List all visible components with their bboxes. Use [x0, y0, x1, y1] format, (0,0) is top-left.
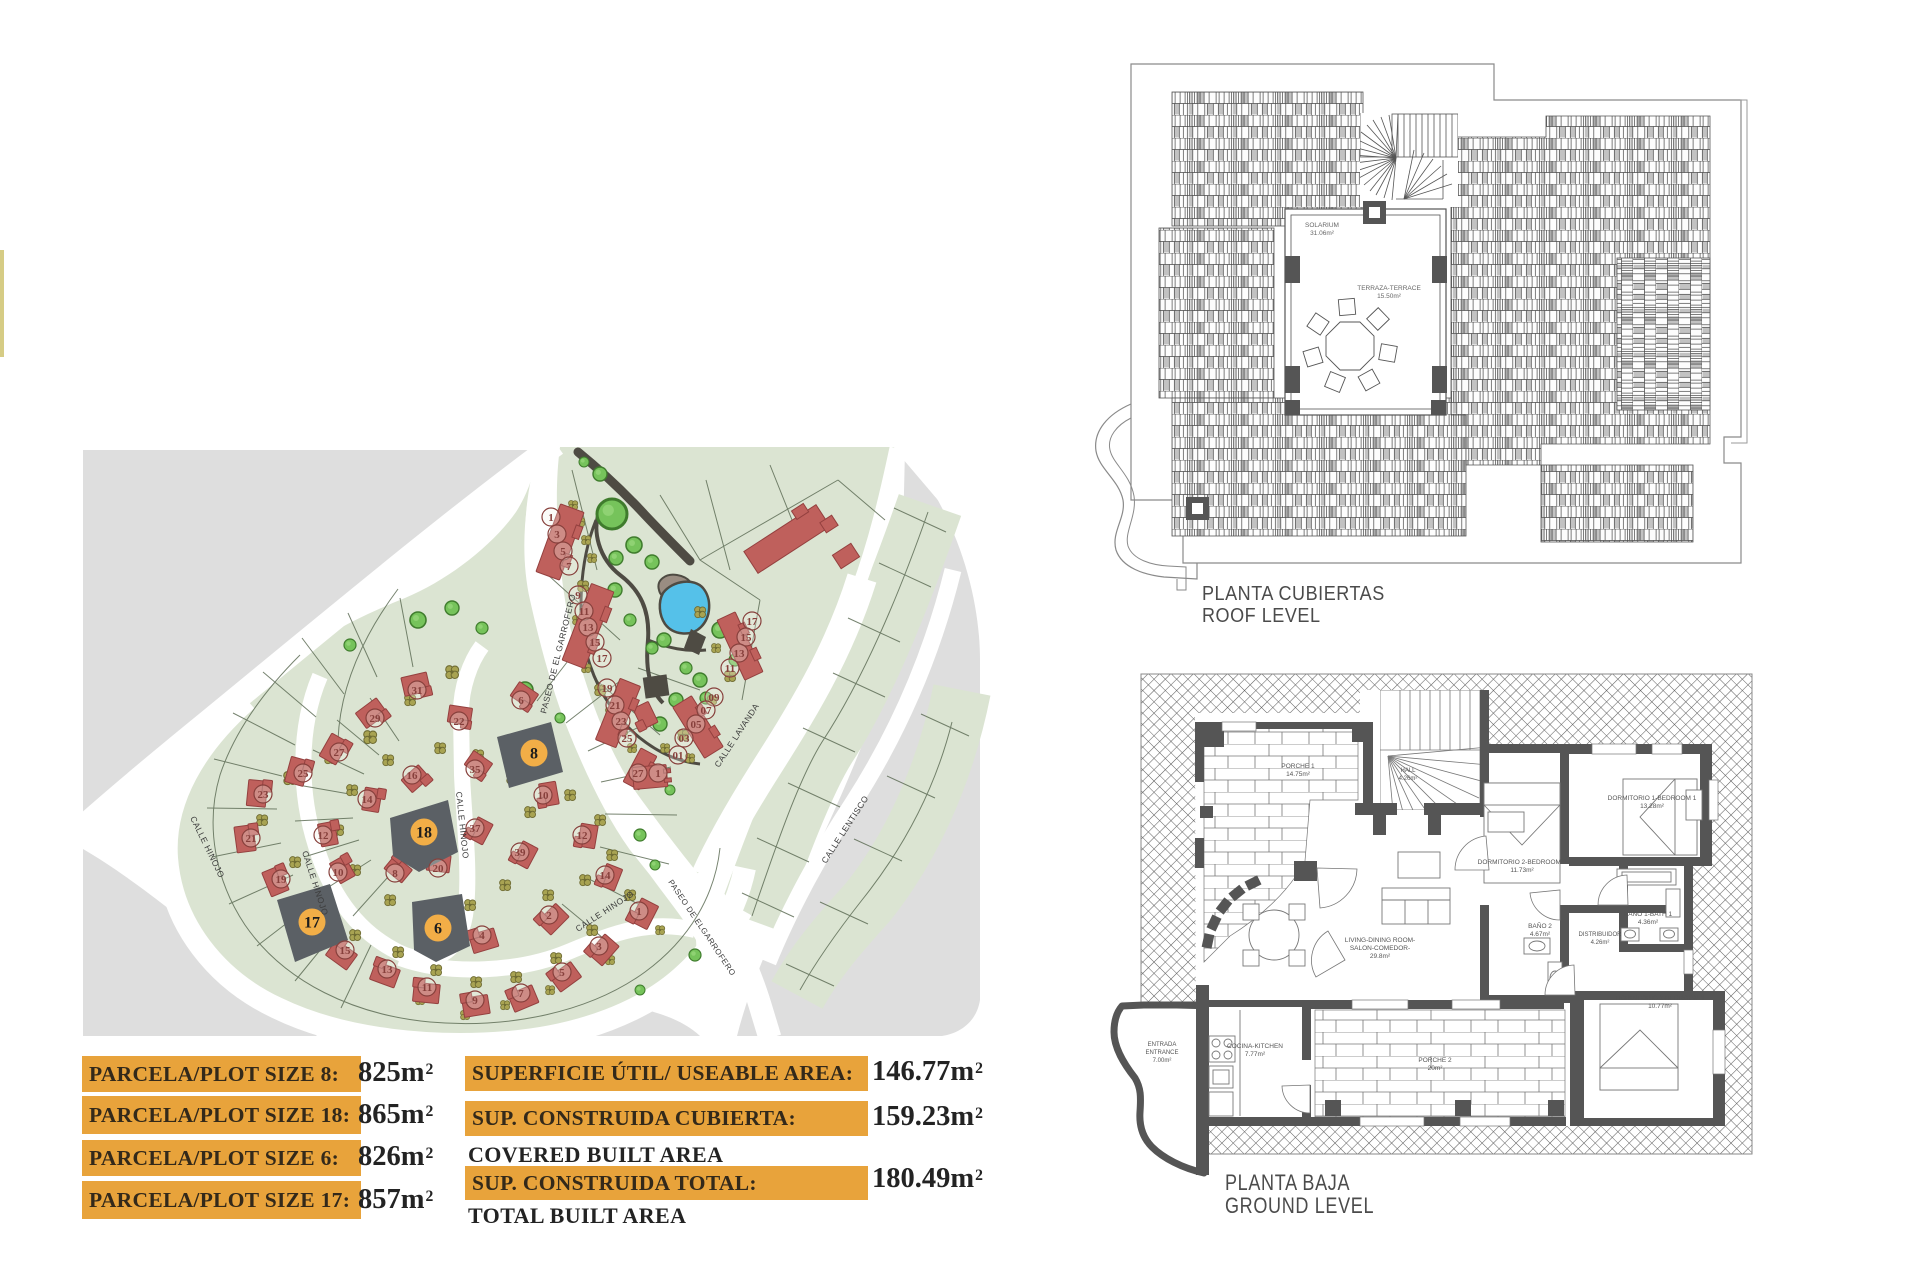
- svg-text:BAÑO 1-BATH 1: BAÑO 1-BATH 1: [1624, 909, 1673, 918]
- svg-text:8: 8: [392, 868, 398, 880]
- svg-text:6: 6: [518, 695, 524, 707]
- svg-text:1: 1: [655, 768, 661, 780]
- svg-text:27: 27: [633, 768, 645, 780]
- svg-text:14.75m²: 14.75m²: [1286, 771, 1311, 778]
- svg-text:SALON-COMEDOR-: SALON-COMEDOR-: [1350, 945, 1410, 952]
- svg-text:8: 8: [530, 746, 538, 763]
- svg-text:16: 16: [407, 770, 419, 782]
- svg-text:35: 35: [470, 764, 482, 776]
- svg-text:11: 11: [579, 606, 589, 618]
- svg-text:4.26m²: 4.26m²: [1591, 940, 1610, 946]
- svg-text:4.36m²: 4.36m²: [1638, 919, 1659, 926]
- svg-text:11: 11: [725, 663, 735, 675]
- svg-text:2: 2: [546, 910, 552, 922]
- svg-text:20: 20: [433, 863, 445, 875]
- svg-text:22: 22: [454, 716, 466, 728]
- svg-text:ENTRADA: ENTRADA: [1148, 1042, 1177, 1048]
- svg-text:DORMITORIO 1-BEDROOM 1: DORMITORIO 1-BEDROOM 1: [1608, 795, 1697, 802]
- svg-text:01: 01: [673, 750, 684, 762]
- svg-text:PLANTA CUBIERTAS: PLANTA CUBIERTAS: [1202, 583, 1385, 605]
- svg-text:DISTRIBUIDOR: DISTRIBUIDOR: [1578, 932, 1622, 938]
- svg-text:12: 12: [577, 830, 589, 842]
- svg-text:ROOF LEVEL: ROOF LEVEL: [1202, 605, 1321, 627]
- svg-text:17: 17: [597, 653, 609, 665]
- svg-text:7.77m²: 7.77m²: [1245, 1051, 1266, 1058]
- svg-text:TERRAZA-TERRACE: TERRAZA-TERRACE: [1357, 285, 1421, 292]
- svg-text:03: 03: [679, 733, 691, 745]
- svg-text:21: 21: [610, 700, 621, 712]
- svg-text:25: 25: [622, 733, 634, 745]
- svg-text:SOLARIUM: SOLARIUM: [1305, 222, 1339, 229]
- svg-text:14: 14: [600, 870, 612, 882]
- svg-text:1: 1: [548, 512, 554, 524]
- svg-text:GROUND LEVEL: GROUND LEVEL: [1225, 1194, 1374, 1218]
- svg-text:27: 27: [334, 747, 346, 759]
- svg-text:15: 15: [741, 632, 753, 644]
- svg-text:15: 15: [340, 945, 352, 957]
- svg-text:15.50m²: 15.50m²: [1377, 293, 1402, 300]
- svg-text:4: 4: [479, 930, 485, 942]
- svg-text:PORCHE 2: PORCHE 2: [1418, 1057, 1452, 1064]
- svg-text:DORMITORIO 3-BEDROOM 3: DORMITORIO 3-BEDROOM 3: [1616, 995, 1705, 1002]
- svg-text:4.26m²: 4.26m²: [1399, 776, 1418, 782]
- svg-text:10.77m²: 10.77m²: [1648, 1003, 1673, 1010]
- svg-text:LIVING-DINING ROOM-: LIVING-DINING ROOM-: [1345, 937, 1415, 944]
- svg-text:25: 25: [298, 768, 310, 780]
- svg-text:4.67m²: 4.67m²: [1530, 931, 1551, 938]
- svg-text:10: 10: [333, 867, 345, 879]
- svg-text:17: 17: [747, 616, 759, 628]
- svg-text:6: 6: [434, 921, 442, 938]
- svg-text:PORCHE 1: PORCHE 1: [1281, 763, 1315, 770]
- svg-text:05: 05: [691, 719, 703, 731]
- svg-text:1: 1: [636, 906, 642, 918]
- svg-text:18: 18: [416, 825, 432, 842]
- svg-text:15: 15: [590, 637, 602, 649]
- svg-text:14: 14: [362, 794, 374, 806]
- svg-text:BAÑO 2: BAÑO 2: [1528, 921, 1552, 930]
- svg-text:DORMITORIO 2-BEDROOM 2: DORMITORIO 2-BEDROOM 2: [1478, 859, 1567, 866]
- svg-text:20m²: 20m²: [1428, 1065, 1444, 1072]
- svg-text:ENTRANCE: ENTRANCE: [1145, 1050, 1178, 1056]
- svg-text:7: 7: [566, 561, 572, 573]
- svg-text:HALL: HALL: [1400, 768, 1416, 774]
- svg-text:13: 13: [382, 964, 394, 976]
- svg-text:17: 17: [304, 915, 320, 932]
- svg-text:7.00m²: 7.00m²: [1153, 1058, 1172, 1064]
- svg-text:9: 9: [472, 995, 478, 1007]
- svg-text:3: 3: [596, 941, 602, 953]
- svg-text:10: 10: [538, 790, 550, 802]
- svg-text:23: 23: [258, 789, 270, 801]
- svg-text:23: 23: [616, 716, 628, 728]
- svg-text:5: 5: [560, 546, 566, 558]
- svg-text:37: 37: [470, 823, 482, 835]
- svg-text:31.06m²: 31.06m²: [1310, 230, 1335, 237]
- svg-text:19: 19: [602, 683, 614, 695]
- svg-text:21: 21: [246, 833, 257, 845]
- svg-text:7: 7: [518, 988, 524, 1000]
- svg-text:11.73m²: 11.73m²: [1510, 867, 1534, 874]
- svg-text:39: 39: [515, 847, 527, 859]
- svg-text:07: 07: [701, 705, 713, 717]
- svg-text:31: 31: [412, 685, 423, 697]
- svg-text:11: 11: [422, 982, 432, 994]
- svg-text:3: 3: [554, 529, 560, 541]
- svg-text:PLANTA BAJA: PLANTA BAJA: [1225, 1171, 1350, 1195]
- svg-text:29.8m²: 29.8m²: [1370, 953, 1391, 960]
- svg-text:19: 19: [276, 874, 288, 886]
- svg-text:13.28m²: 13.28m²: [1640, 803, 1665, 810]
- svg-text:29: 29: [370, 713, 382, 725]
- svg-text:12: 12: [318, 830, 330, 842]
- svg-text:13: 13: [583, 622, 595, 634]
- svg-text:13: 13: [734, 648, 746, 660]
- svg-text:COCINA-KITCHEN: COCINA-KITCHEN: [1227, 1043, 1283, 1050]
- svg-text:5: 5: [559, 967, 565, 979]
